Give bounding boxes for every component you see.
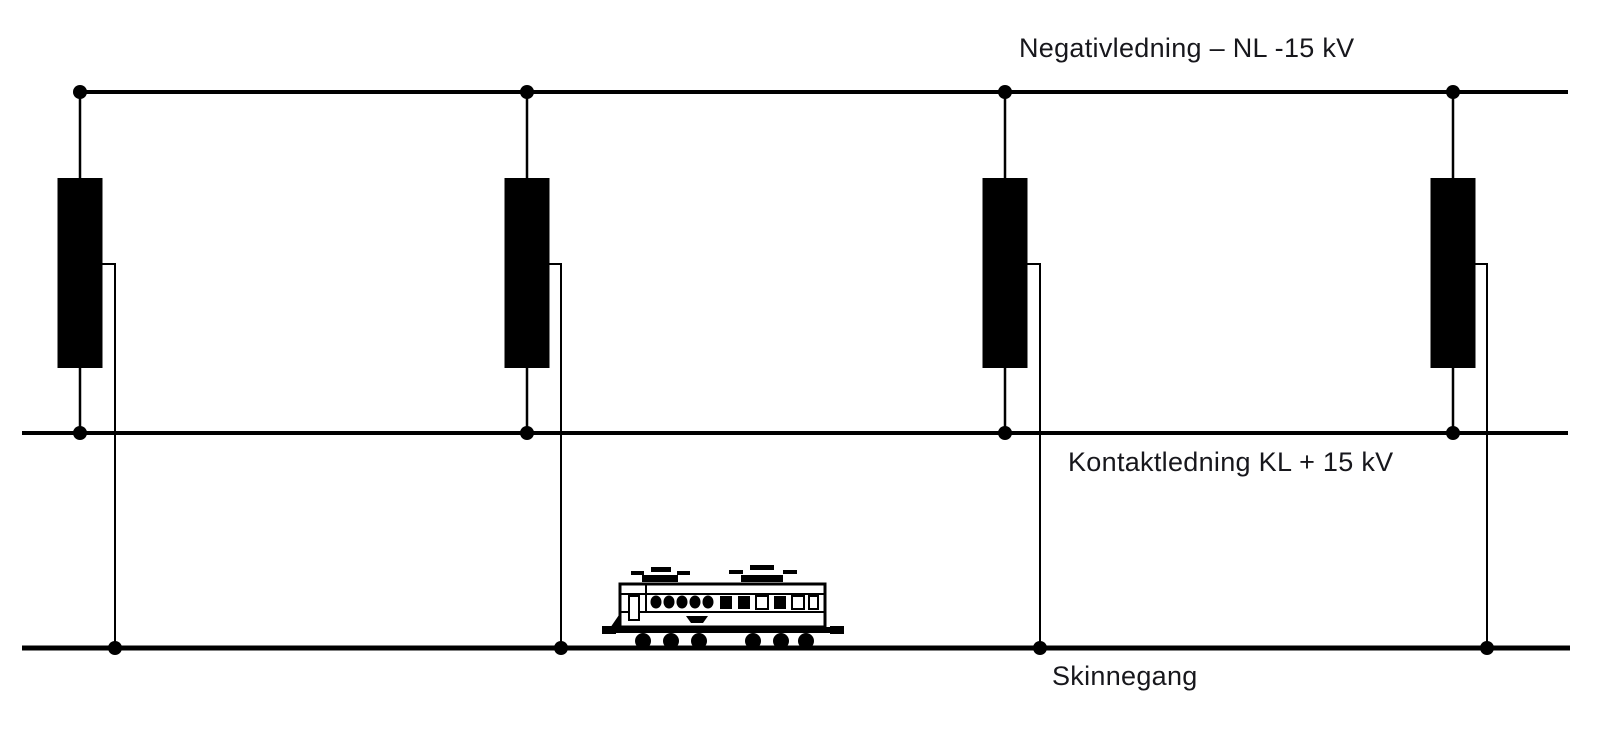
center-tap-lead [550, 264, 562, 648]
electric-locomotive-illustration [602, 565, 844, 649]
winding-body [1431, 178, 1476, 368]
winding-body [983, 178, 1028, 368]
node-contact-line [73, 426, 87, 440]
negative-feeder-label: Negativledning – NL -15 kV [1019, 33, 1355, 63]
node-rail [1033, 641, 1047, 655]
pantograph-icon [729, 565, 797, 582]
node-negative-feeder [73, 85, 87, 99]
pantograph-icon [631, 567, 690, 582]
diagram-canvas: Negativledning – NL -15 kV Kontaktlednin… [0, 0, 1600, 749]
node-rail [108, 641, 122, 655]
autotransformer-4 [1431, 85, 1495, 655]
node-rail [554, 641, 568, 655]
node-contact-line [1446, 426, 1460, 440]
autotransformer-2 [505, 85, 569, 655]
schematic-layer [22, 85, 1570, 655]
autotransformer-3 [983, 85, 1048, 655]
center-tap-lead [1476, 264, 1488, 648]
node-contact-line [520, 426, 534, 440]
node-negative-feeder [1446, 85, 1460, 99]
node-negative-feeder [998, 85, 1012, 99]
autotransformer-1 [58, 85, 123, 655]
center-tap-lead [1028, 264, 1041, 648]
winding-body [505, 178, 550, 368]
node-rail [1480, 641, 1494, 655]
contact-line-label: Kontaktledning KL + 15 kV [1068, 447, 1393, 477]
node-contact-line [998, 426, 1012, 440]
rails-label: Skinnegang [1052, 661, 1198, 691]
node-negative-feeder [520, 85, 534, 99]
center-tap-lead [103, 264, 116, 648]
winding-body [58, 178, 103, 368]
autotransformer-schematic [0, 0, 1600, 749]
